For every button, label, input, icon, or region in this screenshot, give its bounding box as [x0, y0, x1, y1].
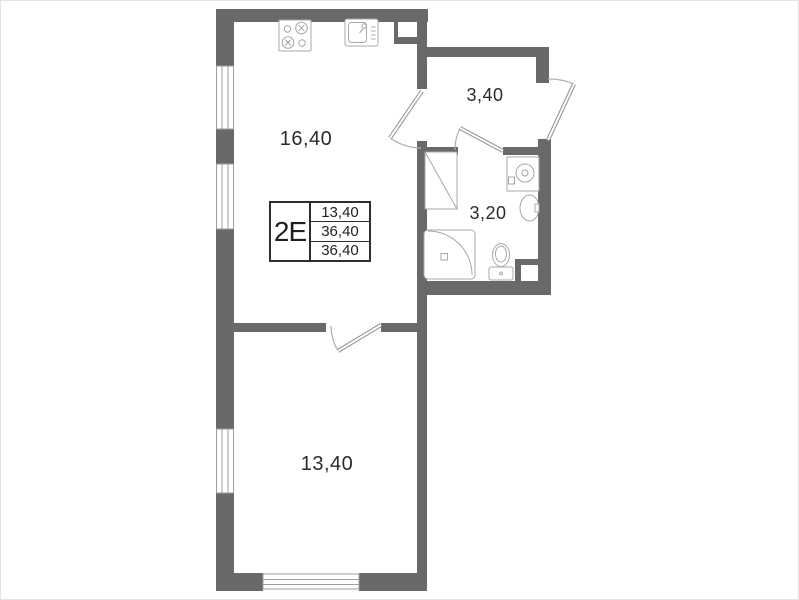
wall — [427, 47, 539, 57]
apartment-stat-living-area: 13,40 — [311, 203, 369, 221]
kitchen-sink-icon — [345, 19, 378, 46]
hallway-area-label: 3,40 — [445, 85, 525, 106]
wall — [515, 259, 539, 265]
apartment-stat-total-area: 36,40 — [311, 221, 369, 240]
door-swing-icon — [390, 91, 422, 148]
shower-icon — [424, 230, 475, 279]
apartment-stat-total-area-reduced: 36,40 — [311, 241, 369, 260]
wall — [536, 47, 549, 83]
kitchen-fixtures — [279, 19, 378, 51]
window-icon — [263, 574, 359, 589]
washing-machine-icon — [507, 157, 539, 191]
wall — [503, 147, 539, 155]
wall — [417, 9, 427, 89]
wall — [234, 323, 326, 332]
wall — [394, 37, 418, 44]
floor-plan: 16,40 3,40 3,20 13,40 2E 13,40 36,40 36,… — [0, 0, 799, 600]
wall — [538, 139, 551, 295]
apartment-type-label: 2E — [271, 203, 311, 260]
wall — [216, 573, 263, 591]
wall — [381, 323, 417, 332]
window-icon — [217, 429, 234, 493]
door-swing-icon — [455, 128, 503, 151]
vent-shaft-icon — [425, 152, 457, 209]
floor-plan-drawing — [1, 1, 799, 600]
window-icon — [217, 66, 234, 129]
door-swing-icon — [548, 79, 574, 140]
wall — [394, 22, 398, 38]
wall — [216, 229, 234, 429]
kitchen-area-label: 16,40 — [264, 128, 348, 151]
wall — [216, 9, 234, 66]
apartment-stats: 13,40 36,40 36,40 — [311, 203, 369, 260]
bedroom-area-label: 13,40 — [285, 453, 369, 476]
door-swing-icon — [331, 325, 381, 351]
wall — [359, 573, 427, 591]
toilet-icon — [489, 244, 513, 281]
wall — [216, 9, 428, 22]
bathroom-area-label: 3,20 — [448, 203, 528, 224]
window-icon — [217, 164, 234, 229]
stove-icon — [279, 20, 311, 51]
wall — [216, 129, 234, 164]
wall — [427, 281, 551, 295]
apartment-info-box: 2E 13,40 36,40 36,40 — [269, 201, 371, 262]
